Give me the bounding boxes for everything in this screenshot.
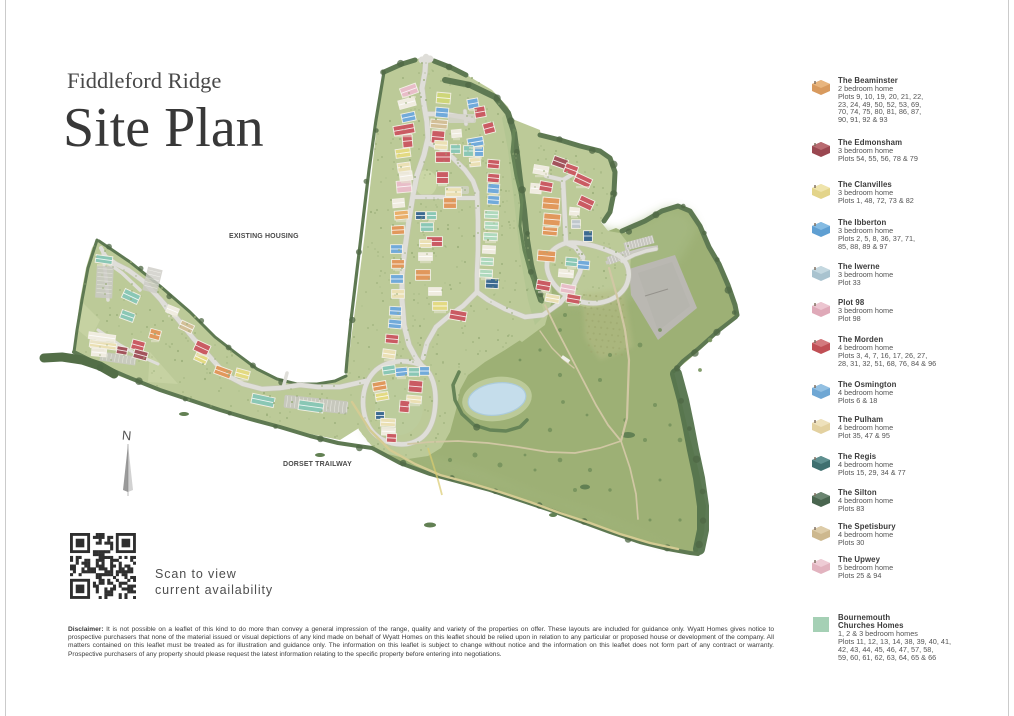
svg-text:N: N [121, 428, 132, 444]
